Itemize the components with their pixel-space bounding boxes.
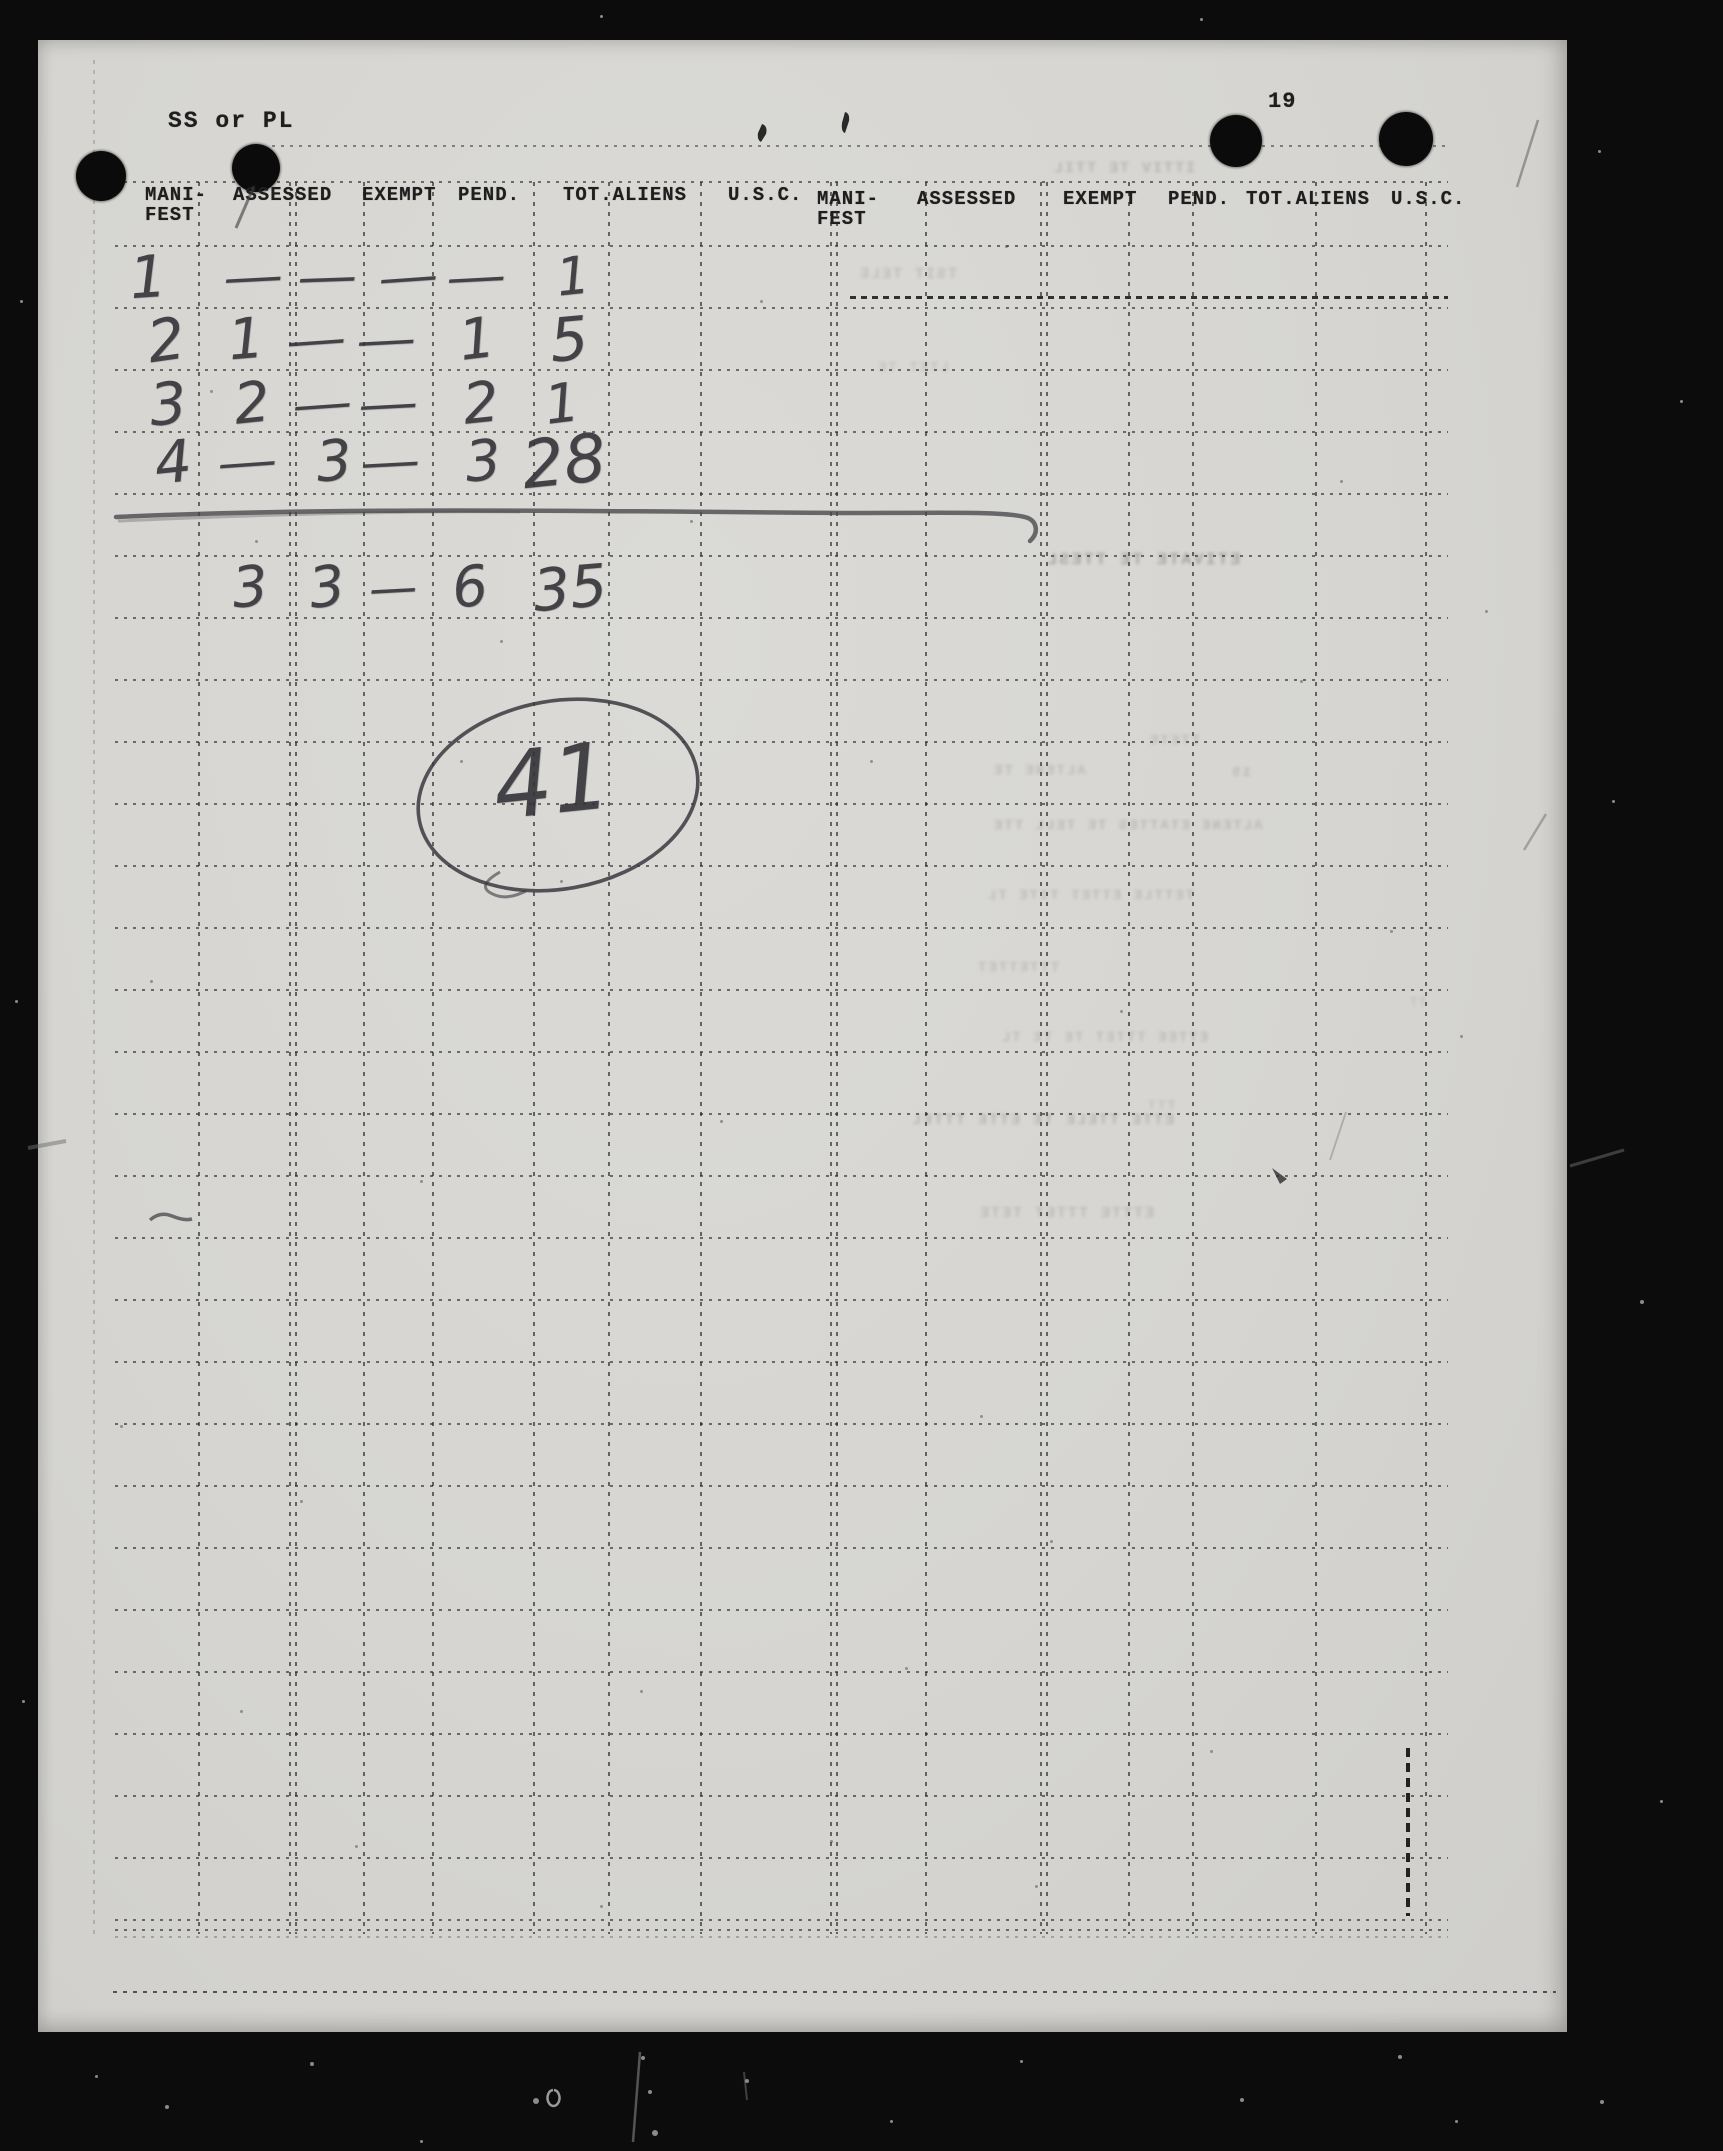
handwritten-dash: — [445, 251, 507, 302]
paper-speck [830, 1840, 833, 1843]
film-speck [600, 15, 603, 18]
handwritten-value: 41 [489, 730, 615, 834]
bleed-through-text: TTETE [1148, 733, 1200, 749]
column-header-right: U.S.C. [1391, 190, 1465, 209]
film-speck [1660, 1800, 1663, 1803]
grid-line-h [115, 181, 1448, 183]
film-speck [1680, 400, 1683, 403]
paper-speck [1300, 680, 1303, 683]
paper-speck [210, 390, 213, 393]
grid-line-h [115, 1733, 1448, 1735]
bleed-through-text: ALTENE TE [992, 763, 1086, 779]
film-speck [652, 2130, 658, 2136]
film-speck [1200, 18, 1203, 21]
film-speck [1398, 2055, 1402, 2059]
film-speck [15, 1000, 18, 1003]
column-header-right: ASSESSED [917, 190, 1016, 209]
film-scratch [744, 2072, 747, 2100]
bleed-through-text: TT [1408, 995, 1426, 1009]
film-speck [95, 2075, 98, 2078]
film-scratch [633, 2052, 640, 2142]
handwritten-value: 2 [231, 374, 272, 433]
paper-speck [420, 1180, 423, 1183]
paper-speck [905, 1667, 908, 1670]
column-header-left: FEST [145, 206, 195, 225]
film-scratch [548, 2090, 560, 2106]
grid-line-h [115, 1609, 1448, 1611]
grid-line-h [115, 1919, 1448, 1921]
bleed-through-text: TTT [1146, 1098, 1175, 1113]
handwritten-value: 3 [147, 374, 189, 435]
bleed-through-text: ETIVATE TE TTESL [1045, 551, 1240, 570]
grid-line-h [115, 679, 1448, 681]
handwritten-value: 3 [314, 433, 354, 492]
column-header-left: EXEMPT [362, 186, 436, 205]
grid-line-h [115, 1929, 1448, 1931]
paper-speck [600, 1905, 603, 1908]
film-speck [22, 1700, 25, 1703]
paper-speck [1390, 930, 1393, 933]
paper-speck [120, 1425, 123, 1428]
handwritten-dash: — [290, 378, 353, 430]
film-speck [1020, 2060, 1023, 2063]
paper-speck [240, 1710, 243, 1713]
paper-speck [150, 980, 153, 983]
handwritten-value: 3 [230, 559, 270, 618]
paper-speck [720, 1120, 723, 1123]
paper-speck [1120, 1010, 1123, 1013]
handwritten-value: 6 [449, 558, 490, 617]
grid-line-h [115, 1671, 1448, 1673]
punch-hole [1379, 112, 1433, 166]
paper-speck [460, 760, 463, 763]
column-header-left: PEND. [458, 186, 520, 205]
handwritten-value: 1 [554, 249, 592, 304]
paper-speck [1460, 1035, 1463, 1038]
grid-line-h [115, 1547, 1448, 1549]
paper-speck [870, 760, 873, 763]
column-header-right: TOT.ALIENS [1246, 190, 1370, 209]
grid-line-h [115, 1113, 1448, 1115]
grid-line-h [115, 927, 1448, 929]
film-speck [1640, 1300, 1644, 1304]
grid-line-h [115, 865, 1448, 867]
bleed-through-text: LTET TE [876, 360, 949, 376]
film-speck [890, 2120, 893, 2123]
film-speck [641, 2056, 645, 2060]
grid-line-h [115, 1485, 1448, 1487]
handwritten-dash: — [215, 436, 278, 488]
film-speck [420, 2140, 423, 2143]
bleed-through-text: ETTEE TTTET TE TE TL [1000, 1030, 1208, 1046]
handwritten-value: 3 [306, 558, 348, 618]
film-speck [1240, 2098, 1244, 2102]
handwritten-value: 28 [519, 425, 609, 499]
handwritten-dash: — [296, 252, 358, 302]
grid-line-h [115, 307, 1448, 309]
film-speck [648, 2090, 652, 2094]
column-header-right: EXEMPT [1063, 190, 1137, 209]
paper-speck [1340, 480, 1343, 483]
grid-line-h [115, 803, 1448, 805]
handwritten-value: 1 [128, 247, 169, 307]
bleed-through-text: TETTLE ETTET TITE TL [986, 888, 1194, 904]
handwritten-value: 5 [547, 308, 590, 371]
paper-speck [1050, 1540, 1053, 1543]
bleed-through-text: ETTTE TTTET TETE [978, 1205, 1154, 1222]
grid-line-h [115, 245, 1448, 247]
typed-over-rule [850, 296, 1448, 299]
grid-line-h [115, 1936, 1448, 1938]
handwritten-dash: — [357, 378, 419, 429]
grid-line-h [115, 1361, 1448, 1363]
bleed-through-text: ALTENE ETATTES TE TELL TTE [992, 818, 1262, 834]
grid-line-v [93, 60, 95, 1934]
film-speck [745, 2079, 749, 2083]
handwritten-value: 3 [463, 433, 503, 492]
handwritten-value: 4 [152, 431, 195, 493]
paper-speck [690, 520, 693, 523]
paper-speck [560, 880, 563, 883]
bleed-through-text: 15 [1230, 765, 1251, 781]
grid-line-h [115, 1795, 1448, 1797]
bleed-through-text: TSIT TELE [858, 266, 957, 283]
grid-line-h [115, 1423, 1448, 1425]
column-header-left: U.S.C. [728, 186, 802, 205]
handwritten-dash: — [222, 251, 284, 302]
column-header-right: PEND. [1168, 190, 1230, 209]
handwritten-value: 2 [144, 309, 189, 372]
paper-speck [500, 640, 503, 643]
handwritten-value: 35 [531, 556, 610, 620]
paper-speck [1485, 610, 1488, 613]
grid-line-h [272, 145, 1448, 147]
paper-speck [980, 1415, 983, 1418]
film-speck [1455, 2120, 1458, 2123]
paper-speck [1005, 245, 1008, 248]
punch-hole [76, 151, 126, 201]
grid-line-h [115, 989, 1448, 991]
column-header-left: MANI- [145, 186, 207, 205]
punch-hole [1210, 115, 1262, 167]
heavy-dashed-segment [1406, 1748, 1410, 1916]
paper-speck [355, 1845, 358, 1848]
grid-line-h [115, 493, 1448, 495]
grid-line-h [113, 1991, 1556, 1993]
bleed-through-text: ETTE TTELE TE ETTE TTTEL [910, 1112, 1174, 1129]
grid-line-h [115, 1857, 1448, 1859]
paper-speck [300, 1500, 303, 1503]
page-number: 19 [1268, 92, 1296, 111]
film-speck [310, 2062, 314, 2066]
handwritten-value: 1 [456, 310, 498, 370]
handwritten-value: — [368, 563, 418, 613]
handwritten-value: 1 [226, 311, 266, 370]
grid-line-h [115, 1299, 1448, 1301]
corner-label: SS or PL [168, 112, 294, 131]
film-speck [1612, 800, 1615, 803]
handwritten-dash: — [355, 314, 417, 365]
bleed-through-text: ITTIV TE TTIL [1052, 160, 1195, 177]
film-speck [20, 300, 23, 303]
handwritten-dash: — [284, 314, 347, 366]
column-header-left: ASSESSED [233, 186, 332, 205]
column-header-right: FEST [817, 210, 867, 229]
paper-speck [1210, 1750, 1213, 1753]
grid-line-h [115, 1175, 1448, 1177]
film-speck [165, 2105, 169, 2109]
paper-speck [640, 1690, 643, 1693]
paper-speck [760, 300, 763, 303]
scanned-page: SS or PL 19 MANI-FESTASSESSEDEXEMPTPEND.… [0, 0, 1723, 2151]
grid-line-h [115, 1237, 1448, 1239]
column-header-right: MANI- [817, 190, 879, 209]
film-scratch [1570, 1150, 1624, 1166]
column-header-left: TOT.ALIENS [563, 186, 687, 205]
film-speck [1598, 150, 1601, 153]
film-speck [1600, 2100, 1604, 2104]
bleed-through-text: TTTETTET [976, 960, 1059, 976]
handwritten-dash: — [359, 436, 421, 487]
paper-speck [255, 540, 258, 543]
paper-speck [1035, 1885, 1038, 1888]
grid-line-h [115, 369, 1448, 371]
grid-line-h [115, 1051, 1448, 1053]
grid-line-h [115, 741, 1448, 743]
film-speck [533, 2098, 539, 2104]
handwritten-dash: — [376, 251, 439, 303]
handwritten-value: 2 [460, 374, 501, 433]
